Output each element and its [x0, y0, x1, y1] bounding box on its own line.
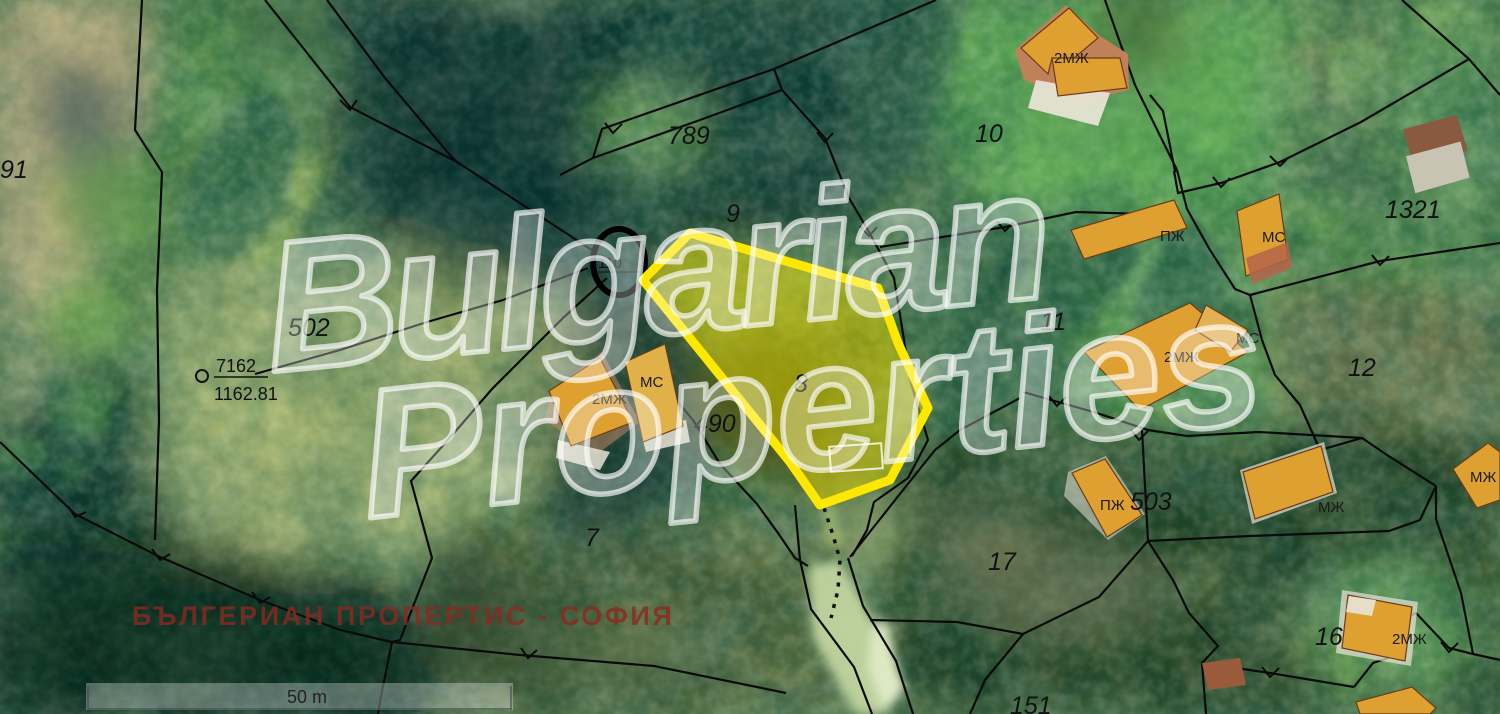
svg-text:1162.81: 1162.81 [214, 384, 278, 404]
svg-text:7162: 7162 [216, 356, 256, 376]
svg-text:2МЖ: 2МЖ [1054, 50, 1089, 67]
svg-text:91: 91 [0, 156, 28, 184]
svg-text:151: 151 [1010, 692, 1052, 714]
svg-text:789: 789 [668, 122, 710, 150]
svg-text:12: 12 [1348, 354, 1376, 382]
svg-text:МЖ: МЖ [1470, 469, 1496, 486]
svg-text:МС: МС [1262, 229, 1285, 246]
svg-text:ПЖ: ПЖ [1100, 497, 1125, 514]
svg-text:МЖ: МЖ [1318, 499, 1344, 516]
svg-text:503: 503 [1130, 488, 1172, 516]
svg-text:50 m: 50 m [287, 687, 327, 707]
svg-text:17: 17 [988, 548, 1017, 576]
svg-text:БЪЛГЕРИАН ПРОПЕРТИС - СОФИЯ: БЪЛГЕРИАН ПРОПЕРТИС - СОФИЯ [132, 601, 674, 631]
svg-text:1321: 1321 [1385, 196, 1441, 224]
svg-text:2МЖ: 2МЖ [1392, 631, 1427, 648]
svg-text:ПЖ: ПЖ [1160, 228, 1185, 245]
svg-text:16: 16 [1315, 623, 1343, 651]
